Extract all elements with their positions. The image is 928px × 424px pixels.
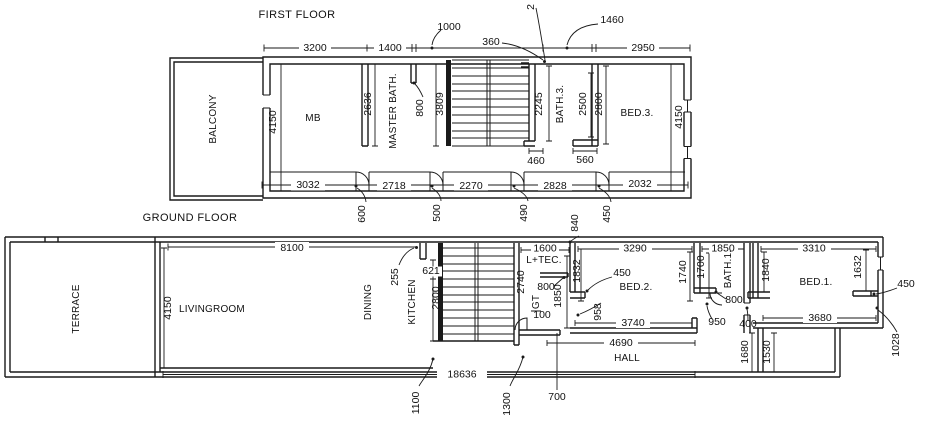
dim-gf-950: 950: [708, 316, 726, 328]
room-dining: DINING: [363, 284, 374, 320]
dim-gf-1840: 1840: [760, 258, 772, 282]
dim-gf-8100: 8100: [280, 242, 304, 254]
dim-gf-3310: 3310: [802, 243, 826, 255]
dim-ff-500: 500: [431, 204, 443, 222]
dim-ff-3200: 3200: [303, 42, 327, 54]
dim-gf-3740: 3740: [621, 317, 645, 329]
dim-ff-2636: 2636: [362, 92, 374, 116]
room-bed3: BED.3.: [621, 108, 654, 119]
dim-ff-2500: 2500: [577, 92, 589, 116]
dim-ff-490: 490: [518, 204, 530, 222]
dim-gf-1600: 1600: [533, 243, 557, 255]
dim-gf-1740: 1740: [677, 260, 689, 284]
dim-ff-560: 560: [576, 154, 594, 166]
dim-gf-4690: 4690: [609, 337, 633, 349]
dim-ff-2032: 2032: [628, 178, 652, 190]
dim-gf-800-bath1: 800: [725, 294, 743, 306]
dim-gf-1850-bath1: 1850: [711, 243, 735, 255]
dim-ff-2270: 2270: [459, 180, 483, 192]
dim-gf-450-bed2: 450: [613, 267, 631, 279]
room-gt: GT: [531, 295, 542, 309]
room-master-bath: MASTER BATH.: [388, 73, 399, 149]
first-floor-plan: FIRST FLOOR BALCONY MB MASTER BATH. BATH…: [170, 4, 692, 244]
dim-ff-2828: 2828: [543, 180, 567, 192]
dim-gf-1300: 1300: [501, 392, 513, 416]
room-bath1: BATH.1.: [723, 250, 734, 288]
dim-gf-1850-ltec: 1850: [552, 284, 564, 308]
dim-gf-450-bed1: 450: [897, 278, 915, 290]
first-floor-title: FIRST FLOOR: [259, 9, 336, 21]
dim-gf-1832: 1832: [571, 259, 583, 283]
room-kitchen: KITCHEN: [407, 279, 418, 324]
dim-gf-1680: 1680: [739, 340, 751, 364]
balcony-door-opening: [261, 95, 272, 108]
dim-gf-621: 621: [422, 265, 440, 277]
dim-ff-1400: 1400: [378, 42, 402, 54]
dim-gf-2800: 2800: [430, 286, 442, 310]
floor-plan-canvas: FIRST FLOOR BALCONY MB MASTER BATH. BATH…: [0, 0, 928, 424]
dim-ff-4150-left: 4150: [267, 110, 279, 134]
room-bed1: BED.1.: [800, 277, 833, 288]
dim-ff-600: 600: [356, 205, 368, 223]
dim-gf-400: 400: [739, 318, 757, 330]
dim-ff-1460: 1460: [600, 14, 624, 26]
dim-ff-3809: 3809: [434, 92, 446, 116]
dim-ff-2718: 2718: [382, 180, 406, 192]
first-floor-stair-treads: [452, 60, 529, 146]
room-terrace: TERRACE: [71, 284, 82, 333]
room-balcony: BALCONY: [208, 94, 219, 143]
floor-plan-drawing: FIRST FLOOR BALCONY MB MASTER BATH. BATH…: [0, 0, 928, 424]
room-hall: HALL: [614, 353, 640, 364]
first-floor-stair-wall: [446, 60, 451, 146]
ground-floor-walls: [5, 237, 883, 377]
dim-ff-460: 460: [527, 155, 545, 167]
dim-gf-3680: 3680: [808, 312, 832, 324]
dim-ff-360: 360: [482, 36, 500, 48]
dim-ff-2245: 2245: [533, 92, 545, 116]
dim-ff-2800: 2800: [593, 92, 605, 116]
dim-ff-3032: 3032: [296, 179, 320, 191]
dim-gf-700: 700: [548, 391, 566, 403]
dim-ff-4150-right: 4150: [673, 105, 685, 129]
ground-floor-title: GROUND FLOOR: [143, 212, 238, 224]
dim-ff-450: 450: [601, 205, 613, 223]
ground-floor-interior-walls: [420, 243, 878, 372]
dim-gf-4150: 4150: [162, 296, 174, 320]
room-bath3: BATH.3.: [555, 85, 566, 123]
ground-floor-stair-treads: [443, 243, 514, 341]
dim-gf-1530: 1530: [761, 340, 773, 364]
dim-ff-1000: 1000: [437, 21, 461, 33]
dim-ff-2950: 2950: [631, 42, 655, 54]
dim-ff-800: 800: [414, 99, 426, 117]
dim-gf-1100: 1100: [410, 392, 422, 415]
dim-gf-958: 958: [592, 303, 604, 321]
first-floor-window-jambs: [263, 95, 691, 159]
ground-floor-plan: GROUND FLOOR TERRACE LIVINGROOM DINING K…: [5, 212, 915, 416]
room-mb: MB: [305, 113, 321, 124]
dim-ff-840: 840: [569, 214, 581, 232]
dim-gf-18636: 18636: [447, 369, 476, 381]
dim-gf-2740: 2740: [515, 270, 527, 294]
room-ltec: L+TEC.: [526, 255, 561, 266]
dim-gf-1028: 1028: [890, 333, 902, 357]
dim-gf-100: 100: [533, 309, 551, 321]
dim-gf-3290: 3290: [623, 243, 647, 255]
dim-gf-1700: 1700: [695, 255, 707, 279]
room-bed2: BED.2.: [620, 282, 653, 293]
dim-gf-255: 255: [389, 268, 401, 286]
dim-ff-partial-2: 2: [525, 4, 537, 10]
dim-gf-1632: 1632: [852, 255, 864, 279]
room-livingroom: LIVINGROOM: [179, 304, 245, 315]
